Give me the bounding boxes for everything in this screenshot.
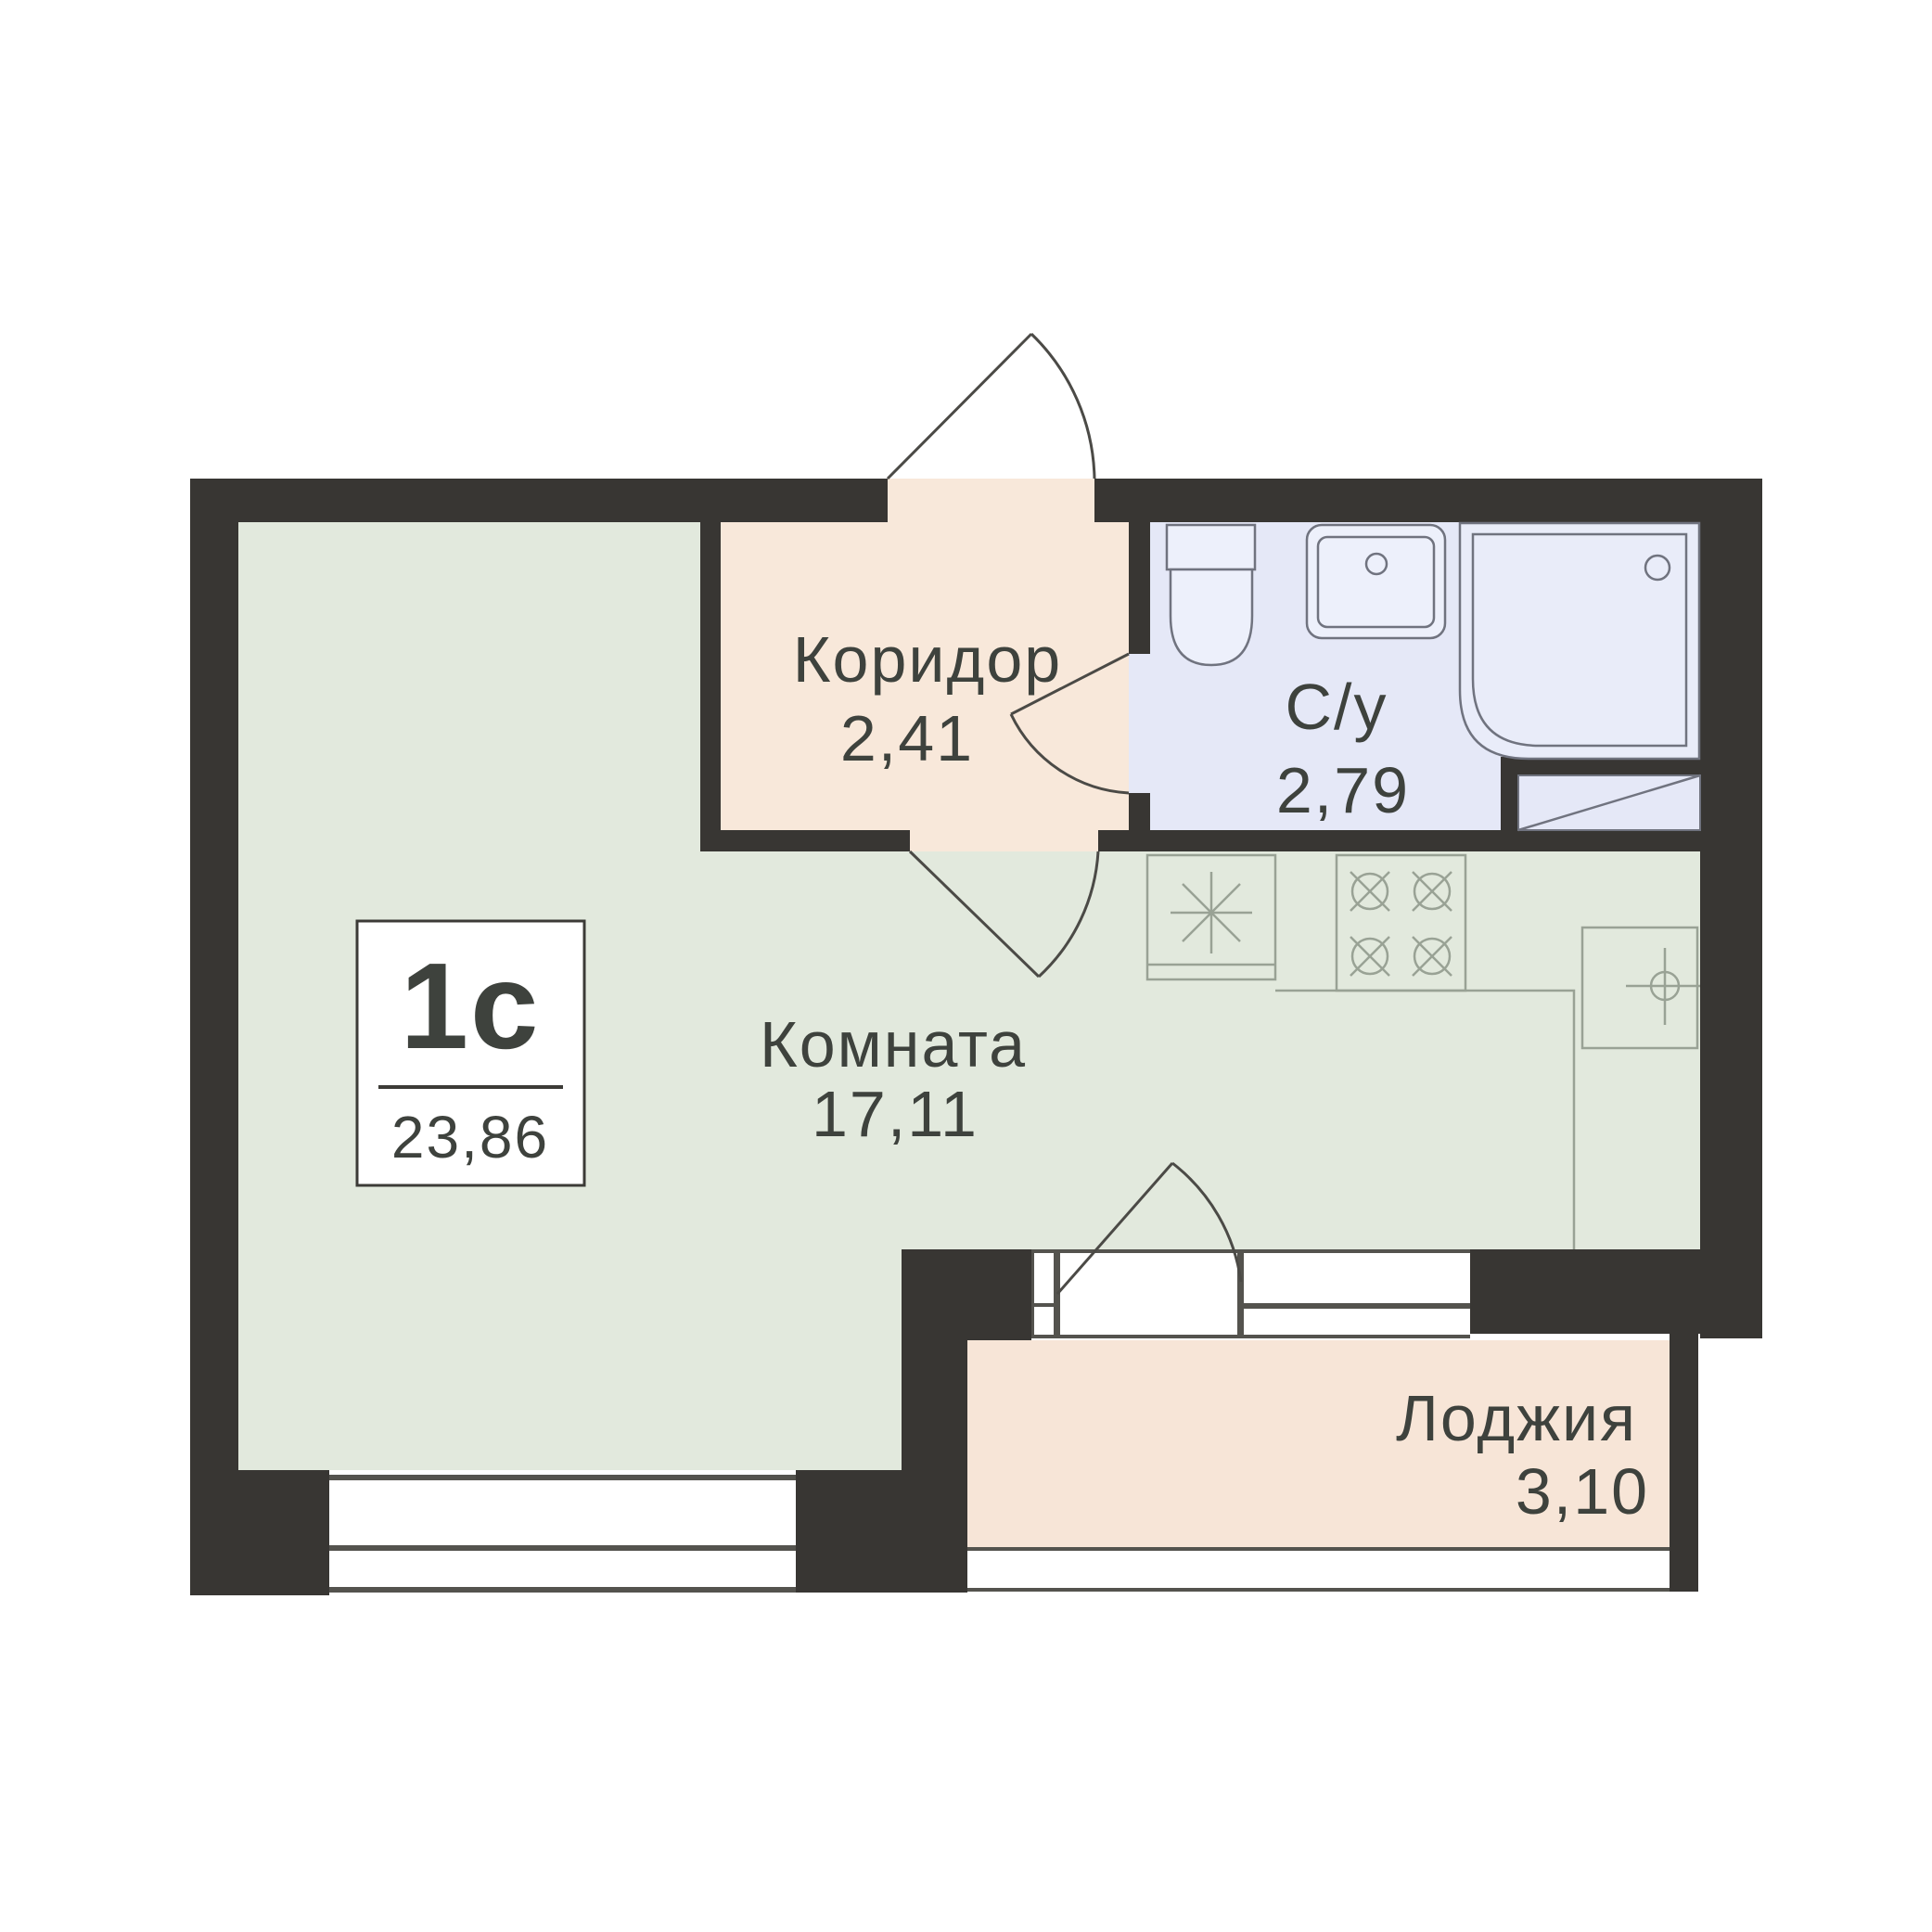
room-window <box>329 1475 796 1593</box>
entrance-door-swing <box>888 334 1094 479</box>
wall-segment <box>1470 1249 1700 1334</box>
window-frame-line <box>329 1475 796 1480</box>
wall-segment <box>1129 522 1150 654</box>
wall-segment <box>190 1470 329 1595</box>
toilet-bowl <box>1171 569 1252 665</box>
loggia-glazing-line <box>967 1547 1670 1551</box>
wall-segment <box>1094 479 1762 522</box>
loggia-glazing-line <box>967 1588 1670 1592</box>
unit-type-label: 1с <box>401 938 541 1074</box>
wall-segment <box>1501 775 1518 833</box>
corridor-label: Коридор <box>793 623 1062 696</box>
wall-segment <box>1129 793 1150 830</box>
wall-segment <box>1098 830 1700 851</box>
wall-segment <box>190 479 238 1475</box>
toilet-tank <box>1167 525 1255 569</box>
washbasin-fixture <box>1307 525 1445 638</box>
window-frame-line <box>329 1545 796 1551</box>
floor-plan: 1с 23,86 Коридор 2,41 С/у 2,79 Комната 1… <box>0 0 1932 1932</box>
corridor-room-doorway-floor <box>910 830 1098 851</box>
asterisk-symbol <box>1171 872 1252 953</box>
toilet-fixture <box>1167 525 1255 665</box>
wall-segment <box>190 479 888 522</box>
balcony-assembly-glass <box>1031 1249 1470 1338</box>
loggia-label: Лоджия <box>1396 1382 1637 1454</box>
wall-segment <box>1670 1334 1698 1592</box>
wall-segment <box>700 830 910 851</box>
wall-segment <box>1700 479 1762 1338</box>
wall-segment <box>700 522 721 851</box>
floor-plan-page: 1с 23,86 Коридор 2,41 С/у 2,79 Комната 1… <box>0 0 1932 1932</box>
wall-segment <box>796 1470 967 1593</box>
entrance-opening-floor <box>888 479 1094 522</box>
wall-segment <box>902 1249 1031 1340</box>
shower-fixture <box>1460 523 1699 759</box>
window-mullion-line <box>1244 1303 1470 1309</box>
shower-outer <box>1460 523 1699 759</box>
wall-segment <box>902 1340 967 1470</box>
bathroom-niche <box>1518 775 1700 830</box>
window-glass <box>329 1475 796 1593</box>
room-label: Комната <box>760 1008 1027 1081</box>
loggia-glass <box>967 1547 1670 1592</box>
washbasin-outer <box>1307 525 1445 638</box>
bathroom-label: С/у <box>1286 671 1388 743</box>
bathroom-area: 2,79 <box>1276 754 1410 826</box>
room-area: 17,11 <box>812 1078 979 1150</box>
corridor-area: 2,41 <box>840 702 974 774</box>
balcony-door-window-assembly <box>1031 1249 1470 1338</box>
unit-label-box: 1с 23,86 <box>357 921 584 1185</box>
unit-total-area: 23,86 <box>391 1104 549 1171</box>
assembly-frame-line <box>1031 1303 1060 1307</box>
loggia-glazing <box>967 1547 1670 1592</box>
window-frame-line <box>329 1587 796 1593</box>
bathroom-doorway-floor <box>1129 654 1150 793</box>
loggia-area: 3,10 <box>1516 1455 1649 1528</box>
assembly-frame-line <box>1031 1249 1034 1338</box>
assembly-frame-line <box>1031 1335 1470 1338</box>
door-leaf <box>888 334 1031 479</box>
door-arc <box>1031 334 1094 479</box>
